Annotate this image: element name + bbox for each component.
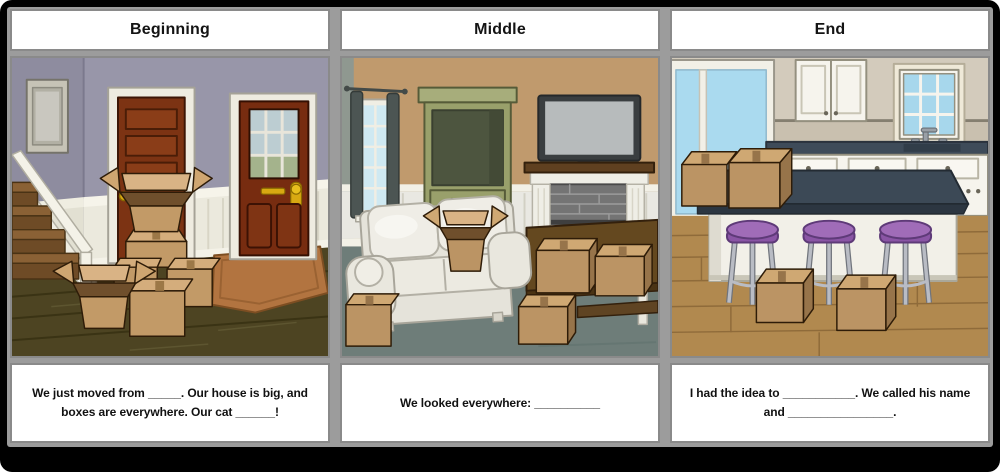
scene-living-room	[340, 56, 660, 358]
panel-title-cell: End	[670, 9, 990, 51]
storyboard-frame: Beginning	[7, 7, 993, 447]
panel-caption-cell: We looked everywhere: __________	[340, 363, 660, 443]
panel-caption-cell: We just moved from _____. Our house is b…	[10, 363, 330, 443]
panel-end: End	[670, 7, 990, 447]
panel-title: Beginning	[130, 21, 210, 39]
closed-box	[536, 239, 597, 293]
front-doorknob	[291, 184, 301, 194]
closed-box	[346, 294, 399, 346]
panel-title: Middle	[474, 21, 526, 39]
scene-kitchen	[670, 56, 990, 358]
upper-cabinet	[796, 60, 867, 121]
panel-title: End	[815, 21, 846, 39]
mail-slot	[261, 188, 285, 194]
door-window	[249, 109, 298, 178]
panel-middle: Middle	[340, 7, 660, 447]
mantel	[525, 163, 655, 173]
sink	[904, 144, 961, 152]
closed-box	[130, 279, 193, 336]
closed-box	[595, 244, 652, 295]
living-window	[344, 86, 408, 222]
closed-box	[837, 275, 896, 330]
moving-boxes	[682, 149, 792, 208]
panel-caption: We just moved from _____. Our house is b…	[20, 384, 320, 421]
closed-box	[519, 295, 576, 344]
storyboard: Beginning	[0, 0, 1000, 472]
panel-caption-cell: I had the idea to ___________. We called…	[670, 363, 990, 443]
panel-title-cell: Beginning	[10, 9, 330, 51]
panel-beginning: Beginning	[10, 7, 330, 447]
front-door	[230, 94, 316, 260]
closed-box	[729, 149, 792, 208]
panel-caption: I had the idea to ___________. We called…	[680, 384, 980, 421]
curtain	[351, 92, 363, 218]
curtain	[387, 94, 399, 218]
wall-tv	[538, 95, 640, 164]
kitchen-window	[892, 64, 967, 150]
panel-caption: We looked everywhere: __________	[400, 394, 600, 413]
closed-box	[756, 269, 813, 322]
picture-frame	[27, 80, 68, 153]
scene-entry-hall	[10, 56, 330, 358]
panel-title-cell: Middle	[340, 9, 660, 51]
